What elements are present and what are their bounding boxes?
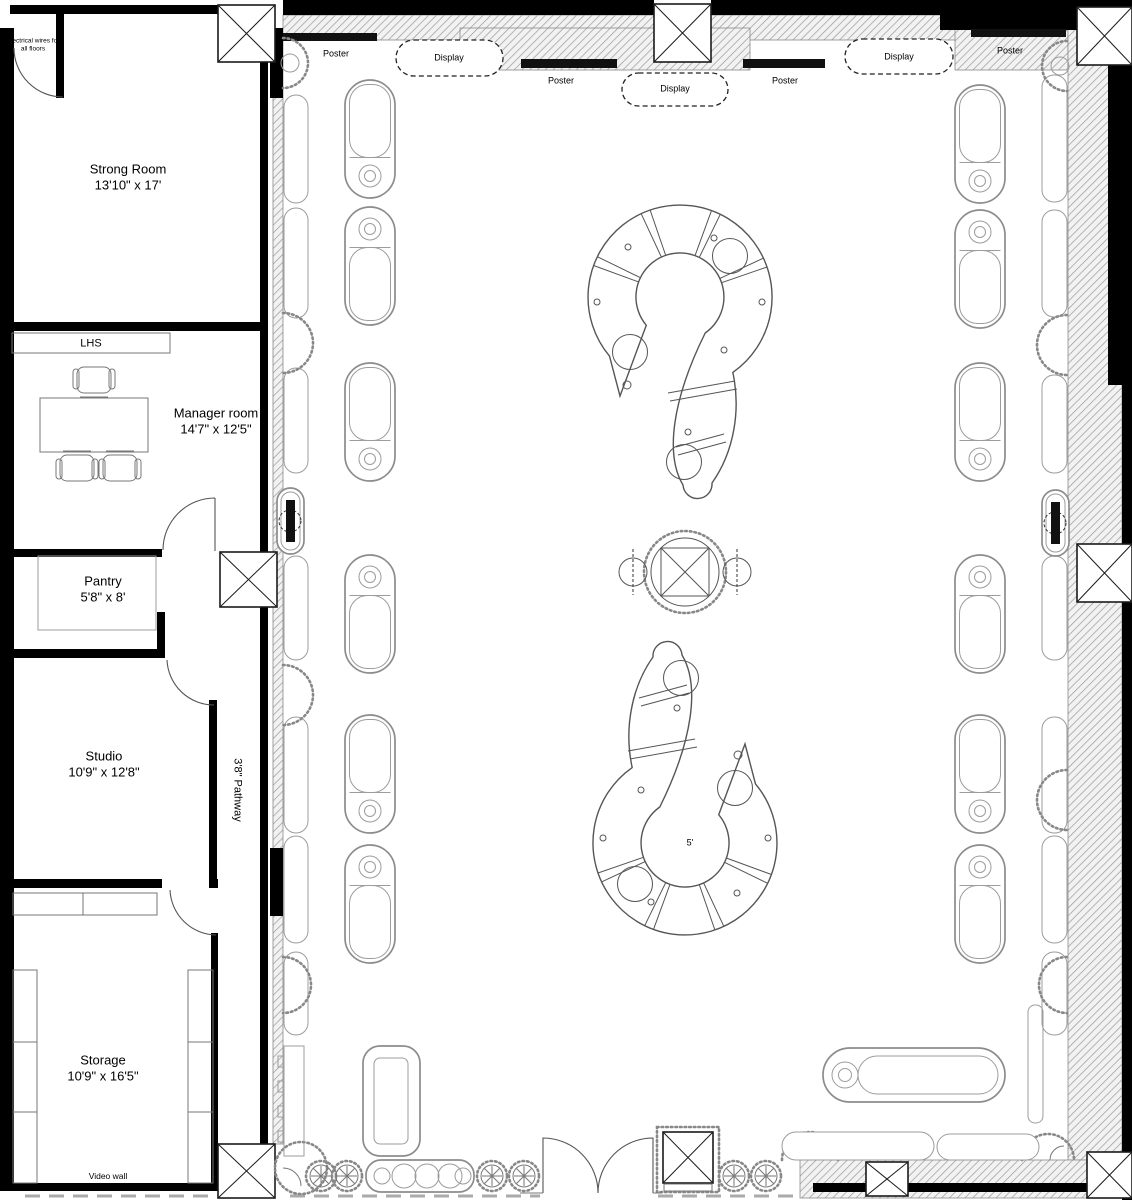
poster-label-1: Poster <box>323 49 349 60</box>
column-scalloped <box>657 1127 719 1192</box>
strong-room-label: Strong Room 13'10" x 17' <box>90 161 167 192</box>
column <box>218 1144 275 1198</box>
electrical-note: Electrical wires for all floors <box>4 38 62 55</box>
room-dims: 13'10" x 17' <box>90 177 167 193</box>
room-name: Storage <box>67 1052 138 1068</box>
aisle-width-label: 5' <box>687 838 694 849</box>
room-name: Strong Room <box>90 161 167 177</box>
manager-table <box>40 398 148 452</box>
column <box>220 552 277 607</box>
service-counter <box>363 1046 420 1156</box>
room-dims: 10'9" x 16'5" <box>67 1068 138 1084</box>
bench <box>782 1132 934 1160</box>
lhs-label: LHS <box>80 337 101 350</box>
cash-bench <box>366 1160 474 1192</box>
pathway-label: 3'8" Pathway <box>230 758 243 822</box>
slatwall-unit <box>284 1046 304 1156</box>
studio-door <box>167 660 214 705</box>
wall-cases-left <box>284 95 308 1035</box>
floor-plan-drawing <box>0 0 1132 1200</box>
standing-cases-right <box>955 85 1005 963</box>
poster-label-2: Poster <box>548 76 574 87</box>
pedestal-fixtures <box>277 488 1069 556</box>
pantry-label: Pantry 5'8" x 8' <box>81 573 126 604</box>
room-dims: 10'9" x 12'8" <box>68 764 139 780</box>
display-label-2: Display <box>660 84 690 95</box>
column <box>866 1162 908 1196</box>
room-name: Manager room <box>174 405 259 421</box>
storage-label: Storage 10'9" x 16'5" <box>67 1052 138 1083</box>
room-name: Studio <box>68 748 139 764</box>
standing-cases-left <box>345 80 395 963</box>
column <box>1087 1152 1132 1198</box>
studio-label: Studio 10'9" x 12'8" <box>68 748 139 779</box>
floor-plan: Electrical wires for all floors Strong R… <box>0 0 1132 1200</box>
manager-room-label: Manager room 14'7" x 12'5" <box>174 405 259 436</box>
room-dims: 14'7" x 12'5" <box>174 421 259 437</box>
poster-label-3: Poster <box>772 76 798 87</box>
display-label-1: Display <box>434 53 464 64</box>
bench <box>937 1134 1039 1160</box>
column <box>218 5 275 62</box>
storage-door <box>170 890 216 935</box>
storefront-glass <box>25 1193 800 1196</box>
center-rotunda <box>619 531 751 613</box>
column <box>1077 544 1132 602</box>
manager-room-door <box>163 498 215 551</box>
room-dims: 5'8" x 8' <box>81 589 126 605</box>
long-display-case <box>823 1048 1005 1102</box>
pedestal-right <box>1042 490 1069 556</box>
video-wall-label: Video wall <box>89 1171 128 1181</box>
pedestal-left <box>277 488 304 554</box>
room-name: Pantry <box>81 573 126 589</box>
column <box>1077 7 1132 65</box>
poster-label-4: Poster <box>997 46 1023 57</box>
display-label-3: Display <box>884 52 914 63</box>
doors <box>14 48 653 1193</box>
strong-room-door <box>14 48 63 97</box>
storage-shelves <box>13 893 213 1183</box>
column <box>654 4 711 62</box>
entrance-double-door <box>543 1138 653 1193</box>
